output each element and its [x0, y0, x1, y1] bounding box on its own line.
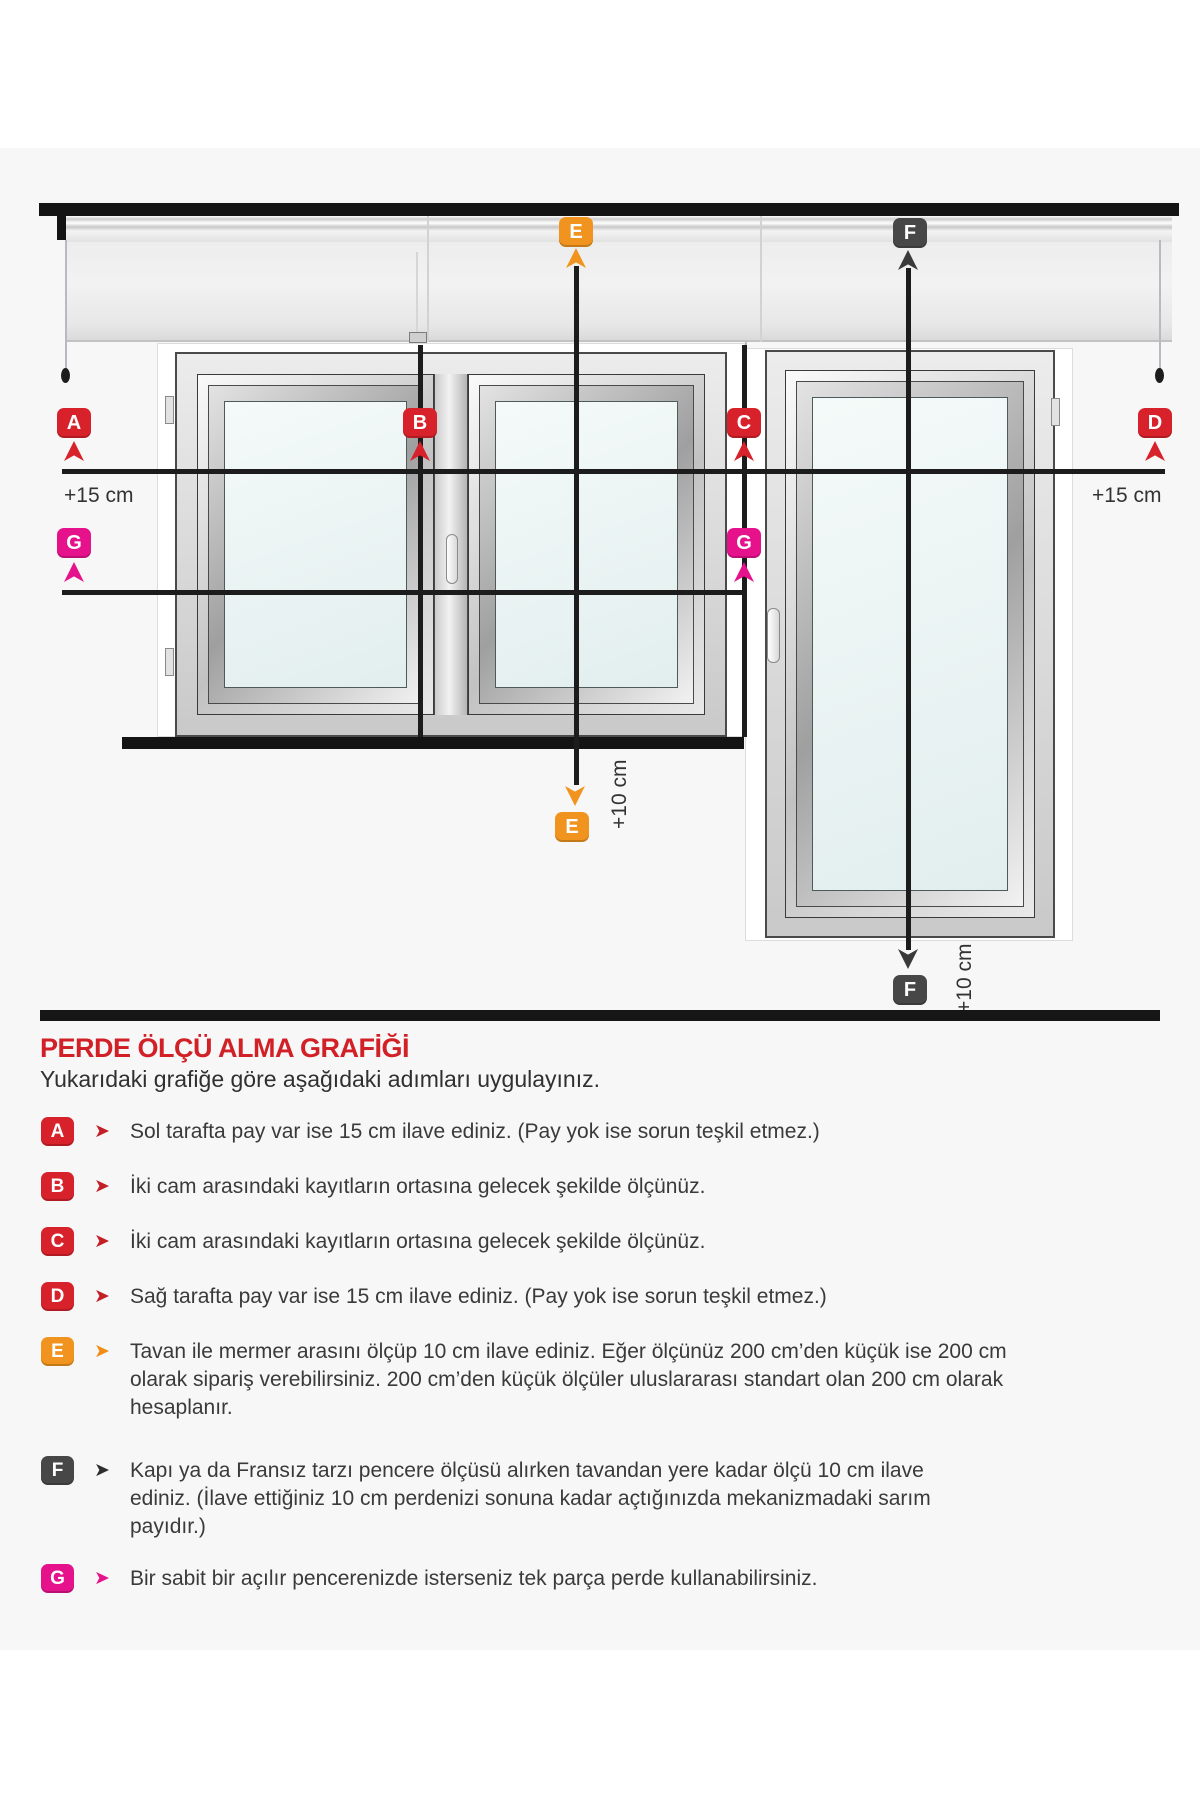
legend-badge-g: G [41, 1564, 74, 1593]
window-glass-left [224, 401, 407, 688]
height-measure-line-e [574, 266, 579, 785]
plus-15cm-label-left: +15 cm [64, 484, 133, 508]
blind-cord-middle-line [416, 252, 418, 334]
plus-10cm-label-f: +10 cm [953, 944, 977, 1013]
curtain-measurement-infographic: A B C D G G E E F F +15 cm +15 cm +10 cm… [0, 0, 1200, 1800]
plus-15cm-label-right: +15 cm [1092, 484, 1161, 508]
window-sill [122, 737, 744, 749]
pointer-arrow-icon: ➤ [94, 1120, 130, 1143]
legend-item-a: A ➤ Sol tarafta pay var ise 15 cm ilave … [41, 1117, 820, 1146]
legend-badge-a: A [41, 1117, 74, 1146]
pointer-arrow-icon: ➤ [94, 1459, 130, 1482]
legend-badge-d: D [41, 1282, 74, 1311]
window-hinge-bottom [165, 648, 174, 676]
blind-cord-bracket [409, 332, 427, 343]
legend-item-f: F ➤ Kapı ya da Fransız tarzı pencere ölç… [41, 1456, 950, 1541]
panel-seam-1 [427, 216, 429, 342]
cord-weight-left [61, 368, 70, 383]
pointer-arrow-icon: ➤ [94, 1175, 130, 1198]
window-sash-right [468, 374, 705, 715]
cord-weight-right [1155, 368, 1164, 383]
section-divider [40, 1010, 1160, 1021]
blind-pull-cord-left [65, 240, 67, 372]
window-hinge-top [165, 396, 174, 424]
marker-g-middle: G [727, 528, 761, 558]
marker-c: C [727, 408, 761, 438]
window-glass-right [495, 401, 678, 688]
page-title: PERDE ÖLÇÜ ALMA GRAFİĞİ [40, 1033, 409, 1064]
window-frame [175, 352, 727, 737]
marker-b: B [403, 408, 437, 438]
legend-badge-f: F [41, 1456, 74, 1485]
door-handle [767, 608, 780, 663]
sash-bevel [479, 385, 694, 704]
legend-text-d: Sağ tarafta pay var ise 15 cm ilave edin… [130, 1283, 827, 1311]
marker-g-left: G [57, 528, 91, 558]
panel-seam-2 [760, 216, 762, 342]
marker-f-bottom: F [893, 975, 927, 1005]
marker-e-top: E [559, 217, 593, 247]
legend-text-b: İki cam arasındaki kayıtların ortasına g… [130, 1173, 705, 1201]
legend-item-c: C ➤ İki cam arasındaki kayıtların ortası… [41, 1227, 705, 1256]
page-subtitle: Yukarıdaki grafiğe göre aşağıdaki adımla… [40, 1066, 600, 1093]
pointer-arrow-icon: ➤ [94, 1285, 130, 1308]
legend-badge-c: C [41, 1227, 74, 1256]
marker-f-top: F [893, 218, 927, 248]
plus-10cm-label-e: +10 cm [608, 760, 632, 829]
legend-text-g: Bir sabit bir açılır pencerenizde isters… [130, 1565, 817, 1593]
legend-item-d: D ➤ Sağ tarafta pay var ise 15 cm ilave … [41, 1282, 827, 1311]
pointer-arrow-icon: ➤ [94, 1230, 130, 1253]
roller-blind-panel [66, 216, 1172, 342]
width-measure-line-ad [62, 469, 1165, 474]
legend-badge-e: E [41, 1337, 74, 1366]
marker-a: A [57, 408, 91, 438]
legend-item-g: G ➤ Bir sabit bir açılır pencerenizde is… [41, 1564, 817, 1593]
marker-e-bottom: E [555, 812, 589, 842]
pointer-arrow-icon: ➤ [94, 1567, 130, 1590]
width-measure-line-g [62, 590, 744, 595]
legend-badge-b: B [41, 1172, 74, 1201]
legend-item-e: E ➤ Tavan ile mermer arasını ölçüp 10 cm… [41, 1337, 1020, 1422]
height-measure-line-f [906, 268, 911, 950]
sash-bevel [208, 385, 423, 704]
curtain-rail [39, 203, 1179, 216]
legend-text-a: Sol tarafta pay var ise 15 cm ilave edin… [130, 1118, 820, 1146]
legend-text-f: Kapı ya da Fransız tarzı pencere ölçüsü … [130, 1457, 950, 1541]
window-mullion [434, 374, 468, 715]
marker-d: D [1138, 408, 1172, 438]
legend-text-c: İki cam arasındaki kayıtların ortasına g… [130, 1228, 705, 1256]
pointer-arrow-icon: ➤ [94, 1340, 130, 1363]
measure-line-b [418, 345, 423, 737]
window-handle [446, 534, 458, 584]
legend-item-b: B ➤ İki cam arasındaki kayıtların ortası… [41, 1172, 705, 1201]
door-hinge [1051, 398, 1060, 426]
window-sash-left [197, 374, 434, 715]
legend-text-e: Tavan ile mermer arasını ölçüp 10 cm ila… [130, 1338, 1020, 1422]
blind-pull-cord-right [1159, 240, 1161, 372]
